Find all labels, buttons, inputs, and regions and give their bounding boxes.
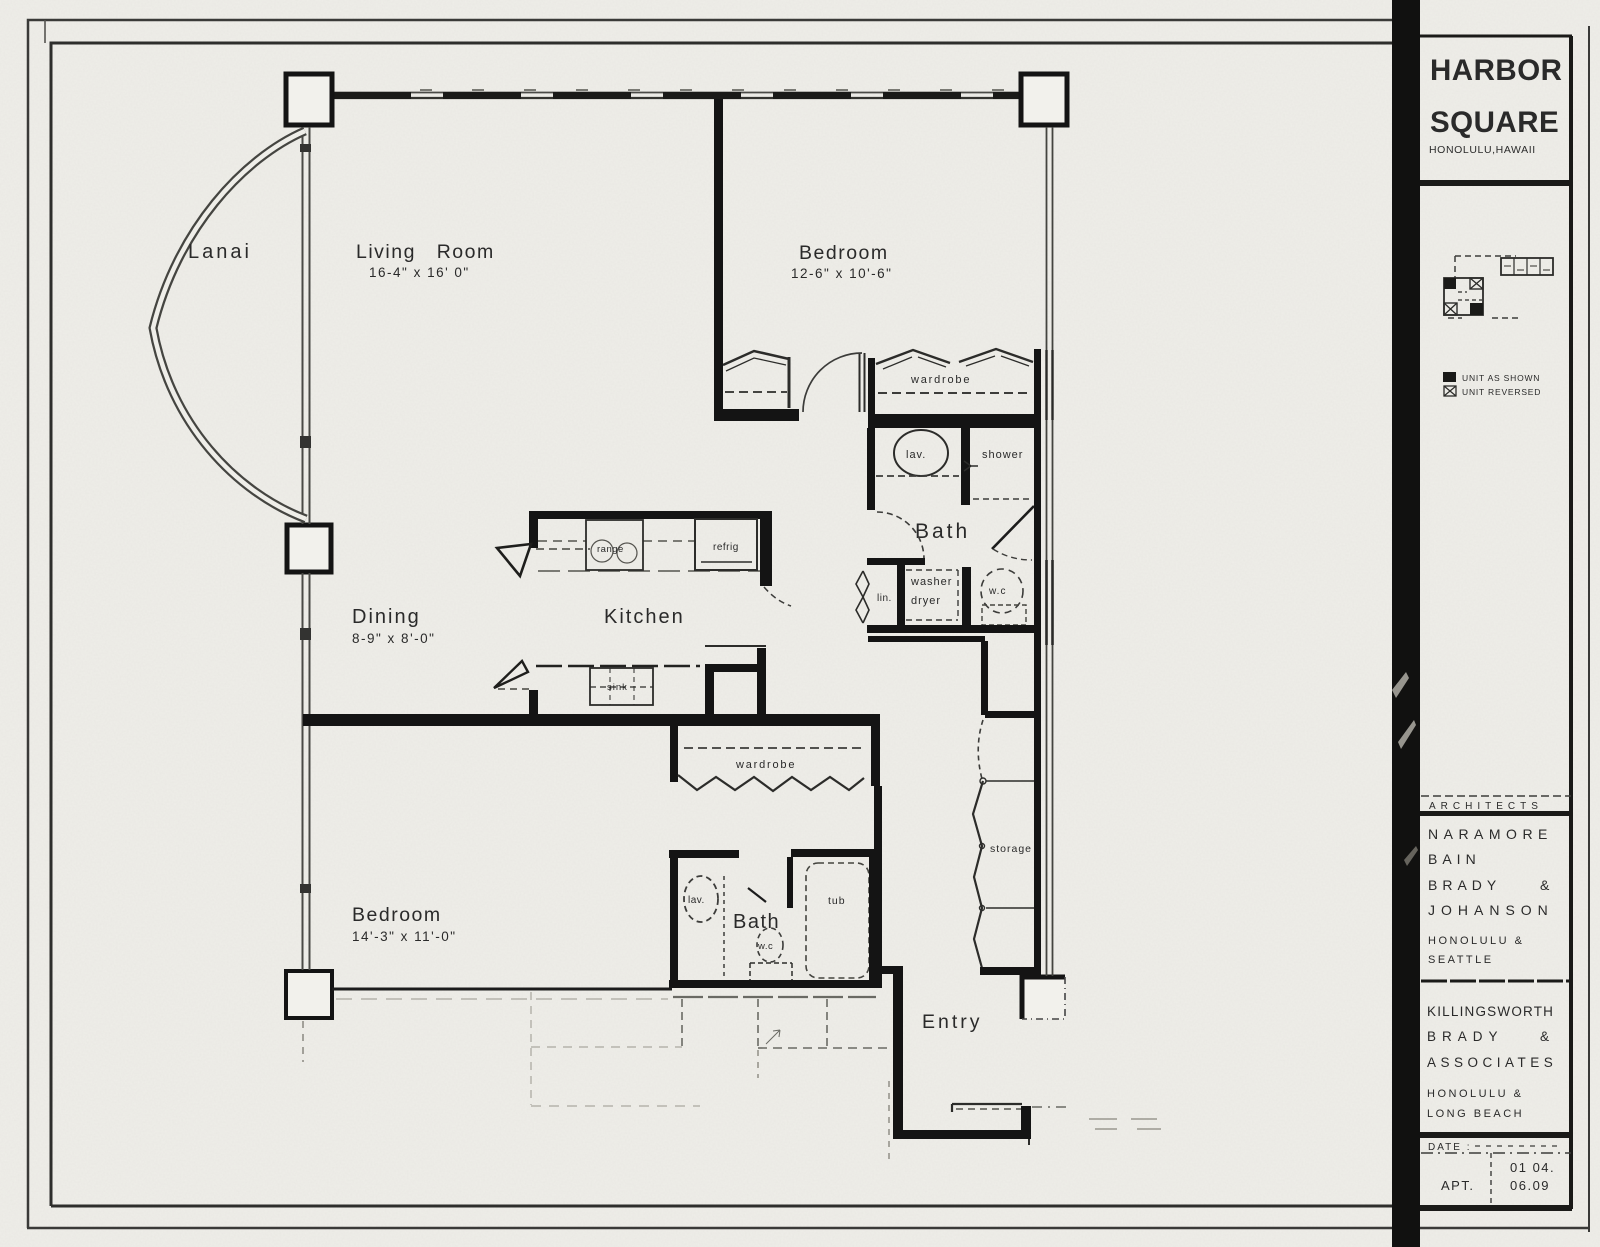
svg-text:NARAMORE: NARAMORE: [1428, 826, 1553, 842]
svg-text:ARCHITECTS: ARCHITECTS: [1429, 801, 1543, 812]
svg-text:APT.: APT.: [1441, 1178, 1474, 1193]
svg-text:Living Room: Living Room: [356, 241, 495, 263]
svg-text:UNIT REVERSED: UNIT REVERSED: [1462, 387, 1541, 397]
svg-text:Bath: Bath: [915, 520, 970, 543]
svg-text:lin.: lin.: [877, 593, 892, 604]
svg-text:w.c: w.c: [988, 586, 1006, 597]
svg-text:BRADY: BRADY: [1428, 877, 1501, 893]
svg-text:Bath: Bath: [733, 911, 780, 933]
svg-text:HARBOR: HARBOR: [1430, 54, 1562, 87]
svg-text:sink: sink: [607, 682, 628, 693]
svg-text:HONOLULU &: HONOLULU &: [1427, 1088, 1524, 1100]
svg-text:storage: storage: [990, 843, 1032, 855]
svg-text:16-4" x 16' 0": 16-4" x 16' 0": [369, 265, 470, 280]
svg-text:Dining: Dining: [352, 606, 421, 628]
svg-text:BRADY: BRADY: [1427, 1029, 1504, 1044]
svg-text:06.09: 06.09: [1510, 1178, 1550, 1193]
svg-text:KILLINGSWORTH: KILLINGSWORTH: [1427, 1004, 1554, 1019]
svg-text:SEATTLE: SEATTLE: [1428, 954, 1494, 966]
svg-text:UNIT AS SHOWN: UNIT AS SHOWN: [1462, 373, 1540, 383]
svg-text:refrig: refrig: [713, 542, 739, 553]
svg-text:range: range: [597, 544, 624, 555]
svg-text:lav.: lav.: [688, 895, 705, 906]
svg-text:lav.: lav.: [906, 449, 926, 461]
svg-text:Kitchen: Kitchen: [604, 606, 685, 628]
svg-text:Lanai: Lanai: [188, 241, 252, 263]
svg-text:HONOLULU &: HONOLULU &: [1428, 935, 1525, 947]
svg-text:HONOLULU,HAWAII: HONOLULU,HAWAII: [1429, 144, 1536, 156]
svg-text:tub: tub: [828, 895, 846, 907]
svg-text:Bedroom: Bedroom: [352, 904, 442, 926]
svg-text:ASSOCIATES: ASSOCIATES: [1427, 1055, 1557, 1070]
svg-text:Bedroom: Bedroom: [799, 242, 889, 264]
svg-text:shower: shower: [982, 449, 1023, 461]
svg-text:dryer: dryer: [911, 595, 941, 607]
svg-text:SQUARE: SQUARE: [1430, 106, 1559, 139]
svg-text:12-6" x 10'-6": 12-6" x 10'-6": [791, 266, 892, 281]
svg-text:BAIN: BAIN: [1428, 851, 1481, 867]
svg-text:washer: washer: [910, 576, 952, 588]
svg-text:01 04.: 01 04.: [1510, 1160, 1555, 1175]
svg-text:DATE :: DATE :: [1428, 1142, 1471, 1153]
svg-text:wardrobe: wardrobe: [910, 374, 971, 386]
svg-text:&: &: [1540, 877, 1550, 893]
svg-text:JOHANSON: JOHANSON: [1428, 902, 1554, 918]
svg-text:wardrobe: wardrobe: [735, 759, 796, 771]
svg-text:w.c: w.c: [757, 941, 773, 952]
svg-text:LONG BEACH: LONG BEACH: [1427, 1108, 1524, 1120]
svg-text:&: &: [1540, 1029, 1549, 1044]
svg-text:14'-3" x 11'-0": 14'-3" x 11'-0": [352, 929, 457, 944]
svg-text:8-9" x 8'-0": 8-9" x 8'-0": [352, 631, 435, 646]
svg-text:Entry: Entry: [922, 1011, 983, 1033]
